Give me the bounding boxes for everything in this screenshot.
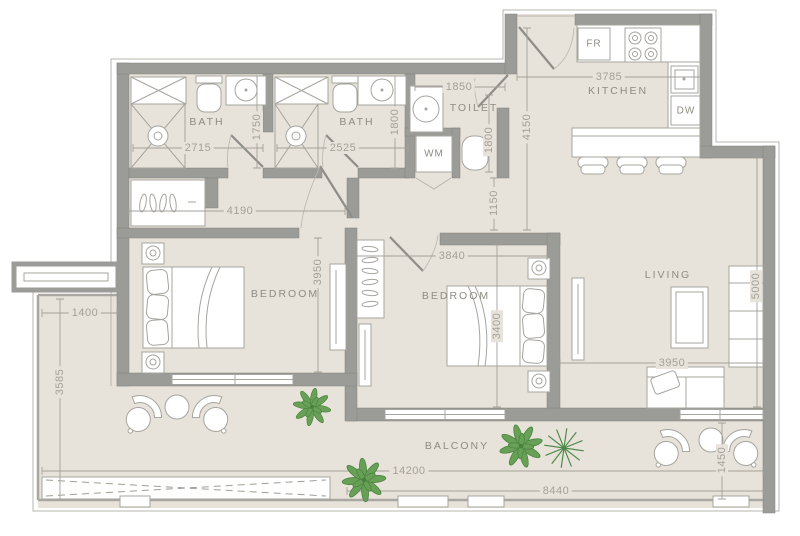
room-label-bath-2: BATH (339, 116, 374, 128)
dim-bath1-width: 2715 (182, 142, 214, 154)
dim-balcony-right-depth: 1450 (716, 444, 728, 476)
dim-balcony-left-width: 1400 (69, 307, 101, 319)
dim-balcony-total-width: 14200 (389, 465, 428, 477)
dim-corridor-length: 4190 (224, 205, 256, 217)
dim-balcony-right-width: 8440 (540, 485, 572, 497)
fridge-label: FR (586, 39, 601, 50)
dim-toilet-depth: 1800 (483, 124, 495, 156)
dim-bath2-depth: 1800 (389, 106, 401, 138)
room-label-living: LIVING (645, 269, 691, 281)
dim-bath2-width: 2525 (327, 142, 359, 154)
dim-hall-length: 4150 (521, 111, 533, 143)
dim-bedroom2-depth: 3400 (491, 310, 503, 342)
wall-fin (14, 264, 118, 290)
room-label-bedroom-1: BEDROOM (251, 288, 319, 300)
floorplan-graphics (0, 0, 800, 536)
floor-plan: BATH BATH TOILET KITCHEN BEDROOM BEDROOM… (0, 0, 800, 536)
dim-balcony-left-depth: 3585 (54, 366, 66, 398)
room-label-balcony: BALCONY (425, 440, 489, 452)
room-label-bath-1: BATH (189, 116, 224, 128)
dim-living-width: 3950 (656, 357, 688, 369)
dim-bedroom2-width: 3840 (436, 250, 468, 262)
corridor-closet (131, 180, 205, 226)
dim-bath1-depth: 1750 (251, 111, 263, 143)
dim-kitchen-width: 3785 (593, 71, 625, 83)
washing-machine-label: WM (424, 149, 444, 160)
dim-bedroom1-depth: 3950 (312, 256, 324, 288)
room-label-toilet: TOILET (450, 102, 499, 114)
room-label-kitchen: KITCHEN (588, 85, 648, 97)
dishwasher-label: DW (677, 106, 696, 117)
dim-hall-width: 1150 (488, 187, 500, 219)
room-label-bedroom-2: BEDROOM (422, 290, 490, 302)
dim-living-depth: 5000 (750, 270, 762, 302)
dim-toilet-width: 1850 (443, 81, 475, 93)
